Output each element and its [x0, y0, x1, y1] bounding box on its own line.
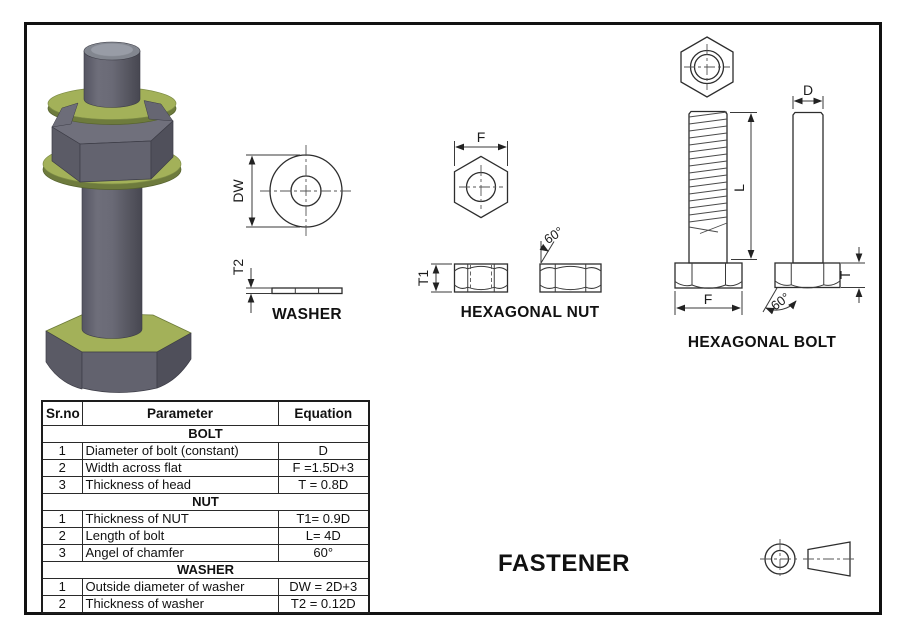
drawing-sheet: DW T2 WASHER F T1 — [0, 0, 905, 640]
washer-top-view — [260, 145, 352, 237]
table-row: 3 Thickness of head T = 0.8D — [42, 477, 369, 494]
cell-equation: T2 = 0.12D — [278, 596, 369, 614]
table-row: 2 Thickness of washer T2 = 0.12D — [42, 596, 369, 614]
bolt-side-view — [775, 113, 840, 288]
bolt-top-view — [681, 37, 733, 97]
cell-parameter: Thickness of washer — [82, 596, 278, 614]
third-angle-projection-symbol — [760, 539, 857, 579]
cell-equation: D — [278, 443, 369, 460]
table-row: 1 Diameter of bolt (constant) D — [42, 443, 369, 460]
dim-bolt-d: D — [793, 82, 823, 109]
table-row: 2 Length of bolt L= 4D — [42, 528, 369, 545]
nut-side-view — [540, 264, 601, 292]
sheet-title: FASTENER — [498, 550, 630, 577]
table-row: 3 Angel of chamfer 60° — [42, 545, 369, 562]
cell-equation: 60° — [278, 545, 369, 562]
table-row: 1 Thickness of NUT T1= 0.9D — [42, 511, 369, 528]
cell-equation: T1= 0.9D — [278, 511, 369, 528]
cell-parameter: Thickness of NUT — [82, 511, 278, 528]
bolt-threaded-view — [675, 112, 742, 289]
isometric-assembly — [43, 42, 191, 393]
dim-label-t1: T1 — [415, 270, 431, 287]
cell-parameter: Diameter of bolt (constant) — [82, 443, 278, 460]
dim-label-d: D — [803, 82, 813, 98]
iso-stud-end — [84, 42, 140, 107]
washer-side-view — [272, 288, 342, 294]
header-equation: Equation — [278, 401, 369, 426]
cell-equation: T = 0.8D — [278, 477, 369, 494]
cell-parameter: Outside diameter of washer — [82, 579, 278, 596]
table-row: 1 Outside diameter of washer DW = 2D+3 — [42, 579, 369, 596]
section-row-washer: WASHER — [42, 562, 369, 579]
dim-bolt-chamfer-angle: 60° — [763, 288, 796, 313]
table-row: 2 Width across flat F =1.5D+3 — [42, 460, 369, 477]
section-title: NUT — [42, 494, 369, 511]
nut-front-view — [455, 264, 508, 292]
washer-view-label: WASHER — [272, 306, 342, 323]
cell-srno: 1 — [42, 511, 82, 528]
cell-srno: 3 — [42, 545, 82, 562]
cell-parameter: Length of bolt — [82, 528, 278, 545]
table-header-row: Sr.no Parameter Equation — [42, 401, 369, 426]
header-srno: Sr.no — [42, 401, 82, 426]
parameter-table: Sr.no Parameter Equation BOLT 1 Diameter… — [41, 400, 370, 614]
cell-srno: 2 — [42, 596, 82, 614]
dim-label-t: T — [837, 270, 853, 279]
dim-bolt-l: L — [730, 113, 757, 260]
dim-nut-t1: T1 — [415, 264, 452, 292]
section-row-nut: NUT — [42, 494, 369, 511]
dim-nut-chamfer-angle: 60° — [541, 224, 566, 263]
cell-srno: 2 — [42, 528, 82, 545]
cell-srno: 3 — [42, 477, 82, 494]
iso-shank — [82, 176, 142, 339]
section-title: WASHER — [42, 562, 369, 579]
thread-lines — [689, 112, 727, 234]
dim-bolt-f: F — [675, 291, 742, 315]
cell-parameter: Width across flat — [82, 460, 278, 477]
section-row-bolt: BOLT — [42, 426, 369, 443]
dim-label-dw: DW — [230, 179, 246, 203]
header-parameter: Parameter — [82, 401, 278, 426]
dim-label-l: L — [731, 184, 747, 192]
cell-equation: DW = 2D+3 — [278, 579, 369, 596]
cell-parameter: Angel of chamfer — [82, 545, 278, 562]
cell-parameter: Thickness of head — [82, 477, 278, 494]
dim-label-f-nut: F — [477, 129, 486, 145]
dim-washer-t2: T2 — [230, 259, 272, 313]
dim-label-f-bolt: F — [704, 291, 713, 307]
dim-nut-f: F — [455, 129, 508, 166]
dim-bolt-t: T — [837, 247, 865, 303]
cell-srno: 2 — [42, 460, 82, 477]
cell-srno: 1 — [42, 443, 82, 460]
cell-equation: L= 4D — [278, 528, 369, 545]
dim-label-60-nut: 60° — [541, 224, 566, 247]
nut-view-label: HEXAGONAL NUT — [461, 304, 600, 321]
nut-top-view — [455, 156, 508, 217]
cell-equation: F =1.5D+3 — [278, 460, 369, 477]
dim-label-t2: T2 — [230, 259, 246, 276]
section-title: BOLT — [42, 426, 369, 443]
cell-srno: 1 — [42, 579, 82, 596]
bolt-view-label: HEXAGONAL BOLT — [688, 334, 837, 351]
